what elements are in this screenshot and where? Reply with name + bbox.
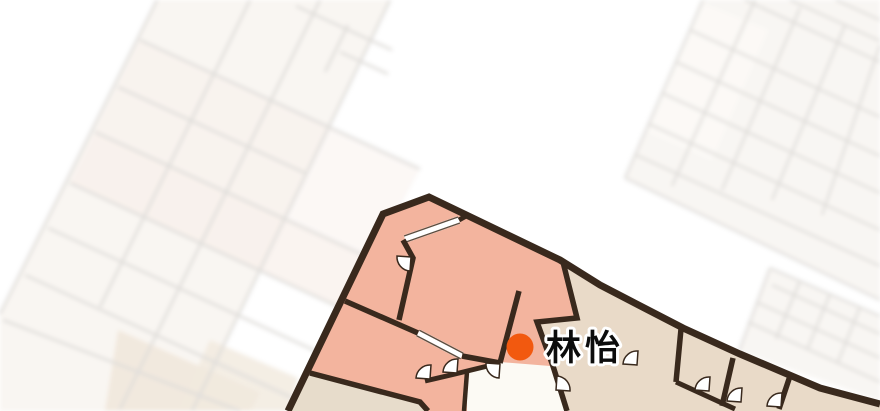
interior-wall — [464, 372, 467, 411]
map-canvas[interactable]: 林怡 — [0, 0, 880, 411]
poi-label: 林怡 — [546, 329, 624, 369]
indoor-map-view: 林怡 — [0, 0, 880, 411]
poi-dot-icon[interactable] — [507, 334, 534, 361]
